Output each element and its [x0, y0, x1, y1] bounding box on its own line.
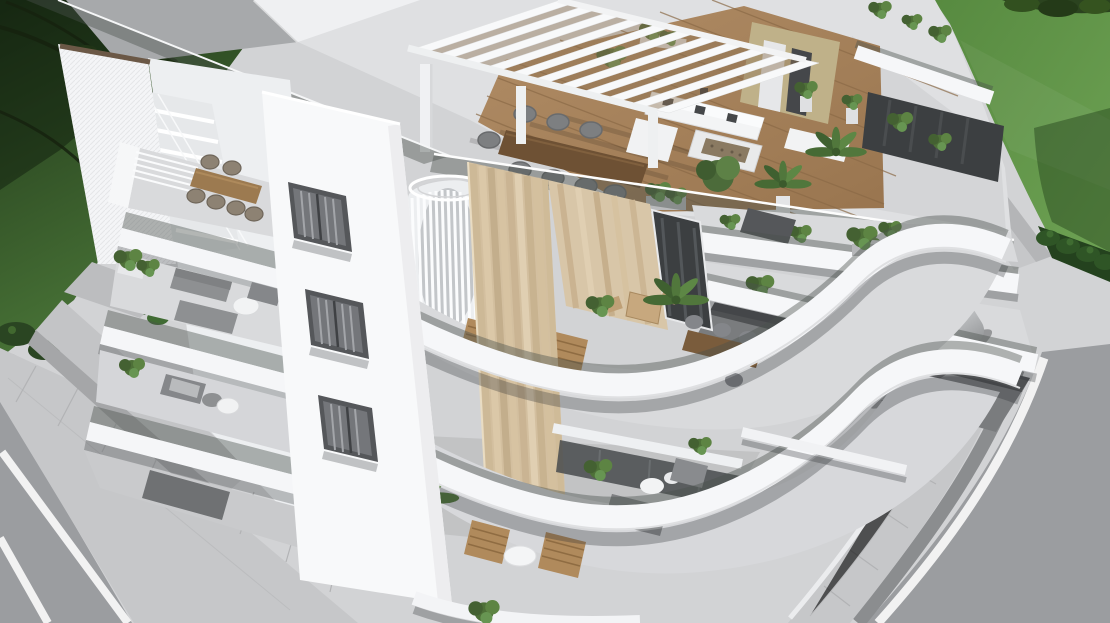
round-table	[217, 398, 239, 414]
architectural-render	[0, 0, 1110, 623]
round-table	[504, 546, 536, 566]
render-canvas	[0, 0, 1110, 623]
pergola-post	[648, 112, 658, 168]
pergola-post	[516, 86, 526, 144]
round-table	[640, 478, 664, 494]
